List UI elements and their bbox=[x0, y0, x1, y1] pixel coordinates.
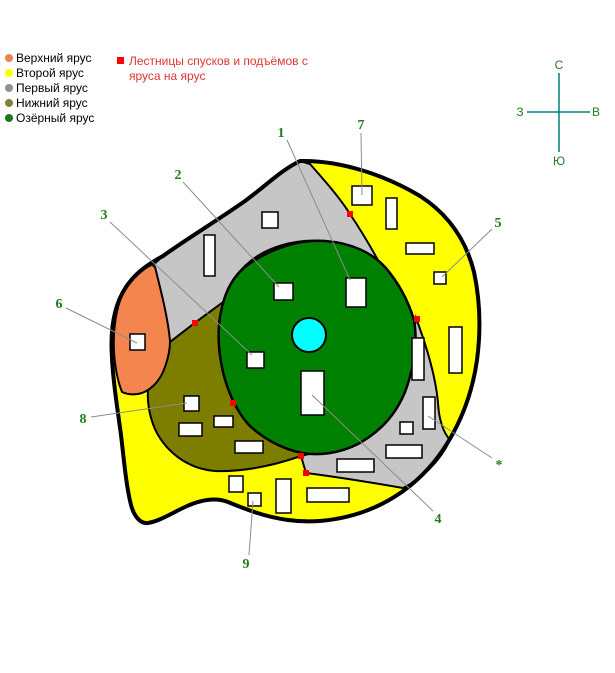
building bbox=[235, 441, 263, 453]
stairs-marker bbox=[414, 316, 420, 322]
building bbox=[412, 338, 424, 380]
map-label-3: 3 bbox=[101, 208, 108, 223]
compass: С Ю З В bbox=[516, 58, 600, 168]
map-label-9: 9 bbox=[243, 557, 250, 572]
building bbox=[247, 352, 264, 368]
stairs-marker bbox=[298, 453, 304, 459]
building bbox=[337, 459, 374, 472]
building bbox=[130, 334, 145, 350]
compass-east-label: В bbox=[592, 105, 600, 119]
map-label-star: * bbox=[496, 458, 503, 473]
building bbox=[179, 423, 202, 436]
map-label-7: 7 bbox=[358, 118, 365, 133]
map-label-6: 6 bbox=[56, 297, 63, 312]
building bbox=[386, 445, 422, 458]
map-label-5: 5 bbox=[495, 216, 502, 231]
stairs-marker bbox=[230, 400, 236, 406]
building bbox=[406, 243, 434, 254]
building bbox=[262, 212, 278, 228]
compass-south-label: Ю bbox=[553, 154, 565, 168]
stairs-marker bbox=[192, 320, 198, 326]
lake bbox=[292, 318, 326, 352]
building bbox=[346, 278, 366, 307]
building bbox=[301, 371, 324, 415]
building bbox=[229, 476, 243, 492]
compass-west-label: З bbox=[516, 105, 523, 119]
building bbox=[307, 488, 349, 502]
map-label-4: 4 bbox=[435, 512, 442, 527]
building bbox=[449, 327, 462, 373]
map-label-2: 2 bbox=[175, 168, 182, 183]
building bbox=[386, 198, 397, 229]
building bbox=[434, 272, 446, 284]
map-label-8: 8 bbox=[80, 412, 87, 427]
building bbox=[276, 479, 291, 513]
building bbox=[204, 235, 215, 276]
building bbox=[400, 422, 413, 434]
site-map: 1 2 3 4 5 6 7 8 9 * С Ю З В bbox=[0, 0, 615, 673]
building bbox=[248, 493, 261, 506]
map-label-1: 1 bbox=[278, 126, 285, 141]
compass-north-label: С bbox=[555, 58, 564, 72]
building bbox=[274, 283, 293, 300]
stairs-marker bbox=[303, 470, 309, 476]
stairs-marker bbox=[347, 211, 353, 217]
building bbox=[423, 397, 435, 429]
building bbox=[214, 416, 233, 427]
